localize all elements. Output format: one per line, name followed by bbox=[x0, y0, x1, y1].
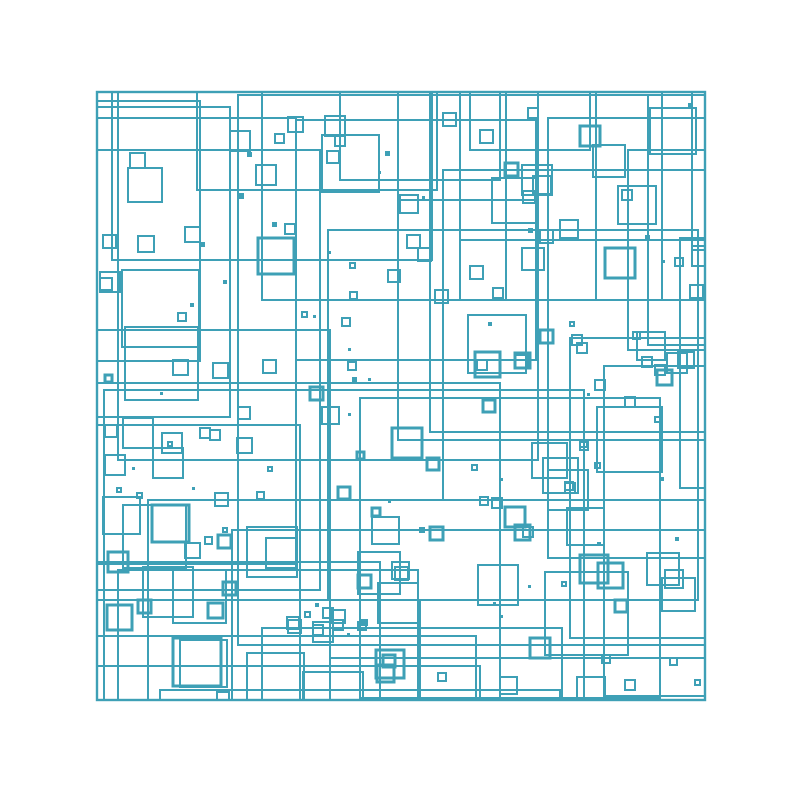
art-square bbox=[567, 508, 604, 545]
art-square bbox=[262, 628, 562, 800]
art-square bbox=[272, 222, 277, 227]
art-square bbox=[200, 428, 210, 438]
art-square bbox=[315, 603, 319, 607]
art-square bbox=[605, 248, 635, 278]
art-square bbox=[0, 118, 296, 564]
art-square bbox=[238, 407, 250, 419]
art-square bbox=[372, 508, 380, 516]
art-square bbox=[192, 487, 195, 490]
art-square bbox=[493, 288, 503, 298]
art-square bbox=[138, 600, 151, 613]
art-square bbox=[263, 360, 276, 373]
generative-artwork bbox=[0, 0, 800, 800]
art-square bbox=[123, 418, 153, 448]
art-square bbox=[160, 392, 163, 395]
art-square bbox=[118, 570, 418, 800]
art-square bbox=[645, 235, 650, 240]
art-square bbox=[117, 488, 121, 492]
art-square bbox=[398, 0, 800, 440]
art-square bbox=[378, 171, 381, 174]
art-square bbox=[438, 673, 446, 681]
art-square bbox=[238, 193, 244, 199]
art-square bbox=[313, 625, 323, 635]
art-square bbox=[107, 605, 132, 630]
art-square bbox=[100, 278, 112, 290]
art-square bbox=[388, 500, 391, 503]
art-square bbox=[205, 537, 212, 544]
art-square bbox=[223, 280, 227, 284]
art-square bbox=[472, 465, 477, 470]
art-square bbox=[688, 103, 693, 108]
art-square bbox=[675, 537, 679, 541]
art-square bbox=[217, 692, 229, 704]
art-square bbox=[275, 134, 284, 143]
art-square bbox=[587, 393, 590, 396]
art-square bbox=[493, 602, 496, 605]
art-square bbox=[105, 375, 112, 382]
art-square bbox=[488, 322, 492, 326]
art-square bbox=[0, 562, 380, 800]
art-square bbox=[112, 0, 432, 260]
art-square bbox=[338, 487, 350, 499]
art-square bbox=[0, 107, 230, 417]
art-square bbox=[628, 150, 800, 350]
art-square bbox=[256, 165, 276, 185]
art-square bbox=[138, 236, 154, 252]
art-square bbox=[477, 360, 487, 370]
art-square bbox=[208, 603, 223, 618]
art-square bbox=[593, 145, 625, 177]
art-square bbox=[418, 615, 421, 618]
art-square bbox=[597, 542, 601, 546]
art-square bbox=[328, 251, 331, 254]
art-square bbox=[305, 612, 310, 617]
art-square bbox=[350, 292, 357, 299]
art-square bbox=[185, 227, 200, 242]
art-square bbox=[470, 266, 483, 279]
art-square bbox=[660, 477, 664, 481]
art-square bbox=[103, 235, 116, 248]
art-square bbox=[223, 528, 227, 532]
art-square bbox=[0, 383, 500, 800]
art-square bbox=[480, 130, 493, 143]
art-square bbox=[615, 600, 627, 612]
art-square bbox=[400, 195, 418, 213]
art-square bbox=[152, 505, 189, 542]
art-square bbox=[310, 387, 323, 400]
art-square bbox=[392, 428, 422, 458]
art-square bbox=[528, 228, 533, 233]
art-square bbox=[352, 377, 357, 382]
art-square bbox=[347, 633, 350, 636]
art-square bbox=[302, 312, 307, 317]
art-square bbox=[348, 348, 351, 351]
art-square bbox=[247, 152, 252, 157]
art-square bbox=[257, 492, 264, 499]
art-square bbox=[540, 330, 553, 343]
art-square bbox=[422, 196, 425, 199]
art-square bbox=[670, 658, 677, 665]
art-square bbox=[363, 623, 366, 626]
art-square bbox=[368, 378, 371, 381]
art-square bbox=[385, 151, 390, 156]
art-square bbox=[200, 242, 205, 247]
art-square bbox=[655, 417, 660, 422]
art-square bbox=[435, 290, 448, 303]
art-square bbox=[173, 570, 226, 623]
art-square bbox=[223, 582, 236, 595]
art-square bbox=[210, 430, 220, 440]
art-square bbox=[528, 585, 531, 588]
art-square bbox=[470, 30, 590, 150]
art-square bbox=[213, 363, 228, 378]
art-square bbox=[650, 108, 696, 154]
art-square bbox=[122, 270, 199, 347]
art-square bbox=[348, 362, 356, 370]
art-square bbox=[625, 680, 635, 690]
art-square bbox=[247, 653, 304, 710]
art-square bbox=[695, 680, 700, 685]
art-square bbox=[378, 583, 418, 623]
art-square bbox=[350, 263, 355, 268]
art-square bbox=[178, 313, 186, 321]
art-square bbox=[132, 467, 135, 470]
art-square bbox=[342, 318, 350, 326]
art-square bbox=[340, 20, 500, 180]
art-square bbox=[562, 582, 566, 586]
art-square bbox=[500, 478, 503, 481]
art-square bbox=[0, 150, 320, 590]
art-square bbox=[690, 285, 703, 298]
art-square bbox=[0, 666, 480, 800]
art-square bbox=[327, 151, 339, 163]
art-square bbox=[230, 131, 250, 151]
art-square bbox=[123, 505, 186, 568]
art-square bbox=[348, 413, 351, 416]
art-square bbox=[105, 455, 125, 475]
art-square bbox=[0, 101, 200, 361]
art-square bbox=[570, 322, 574, 326]
art-square bbox=[528, 108, 538, 118]
squares-layer bbox=[0, 0, 800, 800]
art-square bbox=[540, 230, 553, 243]
art-square bbox=[430, 527, 443, 540]
art-square bbox=[268, 467, 272, 471]
art-square bbox=[104, 390, 584, 800]
art-square bbox=[692, 0, 800, 250]
page-background bbox=[0, 0, 800, 800]
art-square bbox=[105, 425, 117, 437]
art-square bbox=[407, 235, 420, 248]
art-square bbox=[483, 400, 495, 412]
art-square bbox=[160, 690, 560, 800]
art-square bbox=[185, 543, 200, 558]
art-square bbox=[618, 186, 656, 224]
art-square bbox=[662, 260, 665, 263]
art-square bbox=[190, 303, 194, 307]
art-square bbox=[173, 360, 188, 375]
art-square bbox=[103, 497, 140, 534]
art-square bbox=[303, 672, 363, 732]
art-square bbox=[168, 442, 172, 446]
art-square bbox=[0, 330, 330, 760]
art-square bbox=[218, 535, 231, 548]
art-square bbox=[313, 315, 316, 318]
art-square bbox=[258, 238, 294, 274]
art-square bbox=[128, 168, 162, 202]
art-square bbox=[648, 95, 800, 345]
art-square bbox=[500, 615, 503, 618]
art-square bbox=[522, 248, 544, 270]
art-square bbox=[130, 153, 145, 168]
art-square bbox=[237, 438, 252, 453]
art-square bbox=[285, 224, 295, 234]
art-square bbox=[500, 677, 517, 694]
